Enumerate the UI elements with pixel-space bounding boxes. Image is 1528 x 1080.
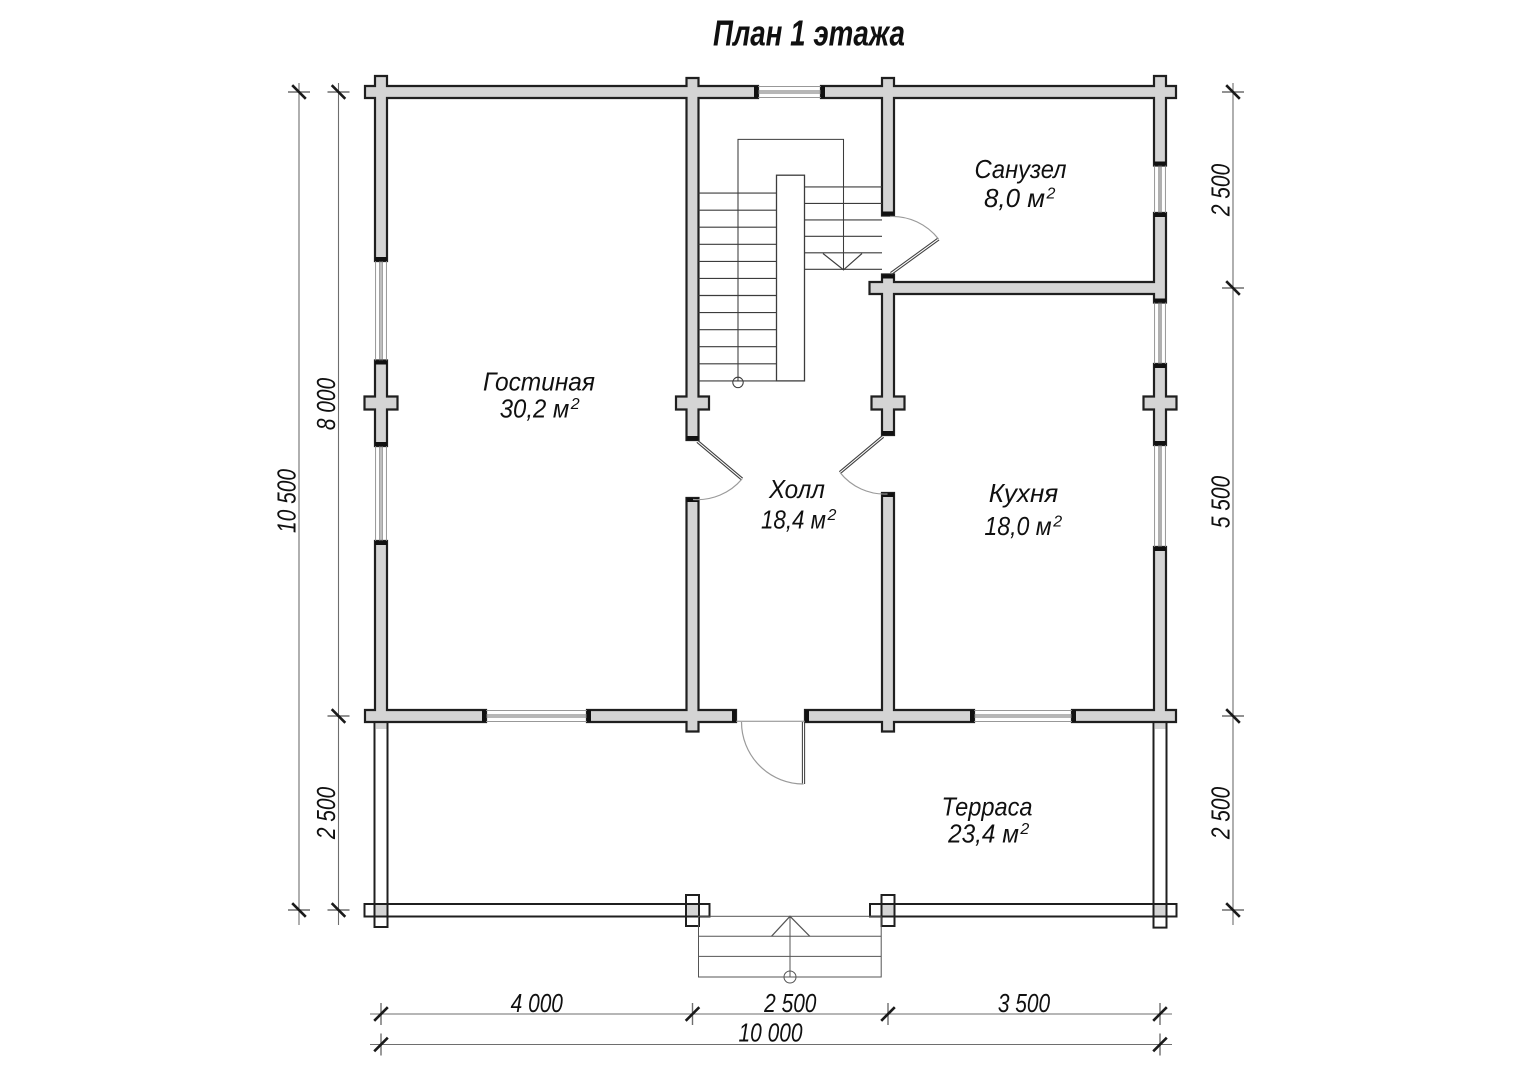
svg-text:2: 2 xyxy=(570,396,580,413)
svg-text:2 500: 2 500 xyxy=(1206,163,1236,217)
svg-text:8 000: 8 000 xyxy=(311,377,341,430)
svg-text:Гостиная: Гостиная xyxy=(483,367,595,397)
svg-text:2 500: 2 500 xyxy=(311,786,341,840)
svg-text:10 500: 10 500 xyxy=(272,469,302,533)
svg-text:2 500: 2 500 xyxy=(1206,786,1236,840)
svg-text:2: 2 xyxy=(1052,514,1062,531)
svg-text:18,0 м: 18,0 м xyxy=(984,511,1051,541)
svg-text:Терраса: Терраса xyxy=(942,792,1033,822)
svg-text:Кухня: Кухня xyxy=(989,478,1059,508)
svg-text:2: 2 xyxy=(1019,821,1029,838)
svg-text:Холл: Холл xyxy=(768,474,825,504)
svg-text:Санузел: Санузел xyxy=(975,154,1067,184)
svg-text:30,2 м: 30,2 м xyxy=(500,394,570,424)
svg-text:5 500: 5 500 xyxy=(1206,475,1236,528)
svg-text:2 500: 2 500 xyxy=(763,988,817,1018)
svg-text:2: 2 xyxy=(1046,186,1056,203)
svg-text:4 000: 4 000 xyxy=(511,988,564,1018)
svg-text:23,4 м: 23,4 м xyxy=(947,819,1019,849)
svg-text:8,0 м: 8,0 м xyxy=(984,183,1045,213)
svg-text:2: 2 xyxy=(827,507,837,524)
svg-text:18,4 м: 18,4 м xyxy=(761,505,826,535)
svg-text:3 500: 3 500 xyxy=(998,988,1051,1018)
svg-text:10 000: 10 000 xyxy=(739,1018,803,1048)
svg-text:План 1 этажа: План 1 этажа xyxy=(713,13,905,54)
